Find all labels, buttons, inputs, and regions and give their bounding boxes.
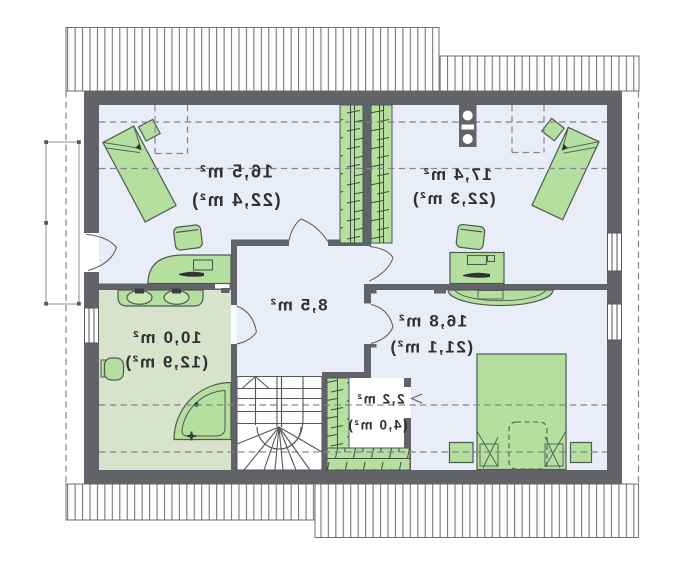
svg-text:(21,1 m²): (21,1 m²) — [389, 338, 473, 357]
svg-text:17,4 m²: 17,4 m² — [422, 165, 492, 184]
svg-text:10,0 m²: 10,0 m² — [132, 328, 202, 347]
svg-text:(12,9 m²): (12,9 m²) — [124, 353, 208, 372]
svg-text:(4,0 m²): (4,0 m²) — [347, 418, 408, 433]
svg-text:16,8 m²: 16,8 m² — [397, 312, 467, 331]
svg-text:(22,3 m²): (22,3 m²) — [411, 189, 495, 208]
svg-text:(22,4 m²): (22,4 m²) — [190, 190, 280, 210]
svg-text:8,5 m²: 8,5 m² — [269, 296, 328, 315]
svg-text:2,2 m²: 2,2 m² — [356, 392, 405, 407]
svg-text:16,5 m²: 16,5 m² — [198, 162, 273, 182]
